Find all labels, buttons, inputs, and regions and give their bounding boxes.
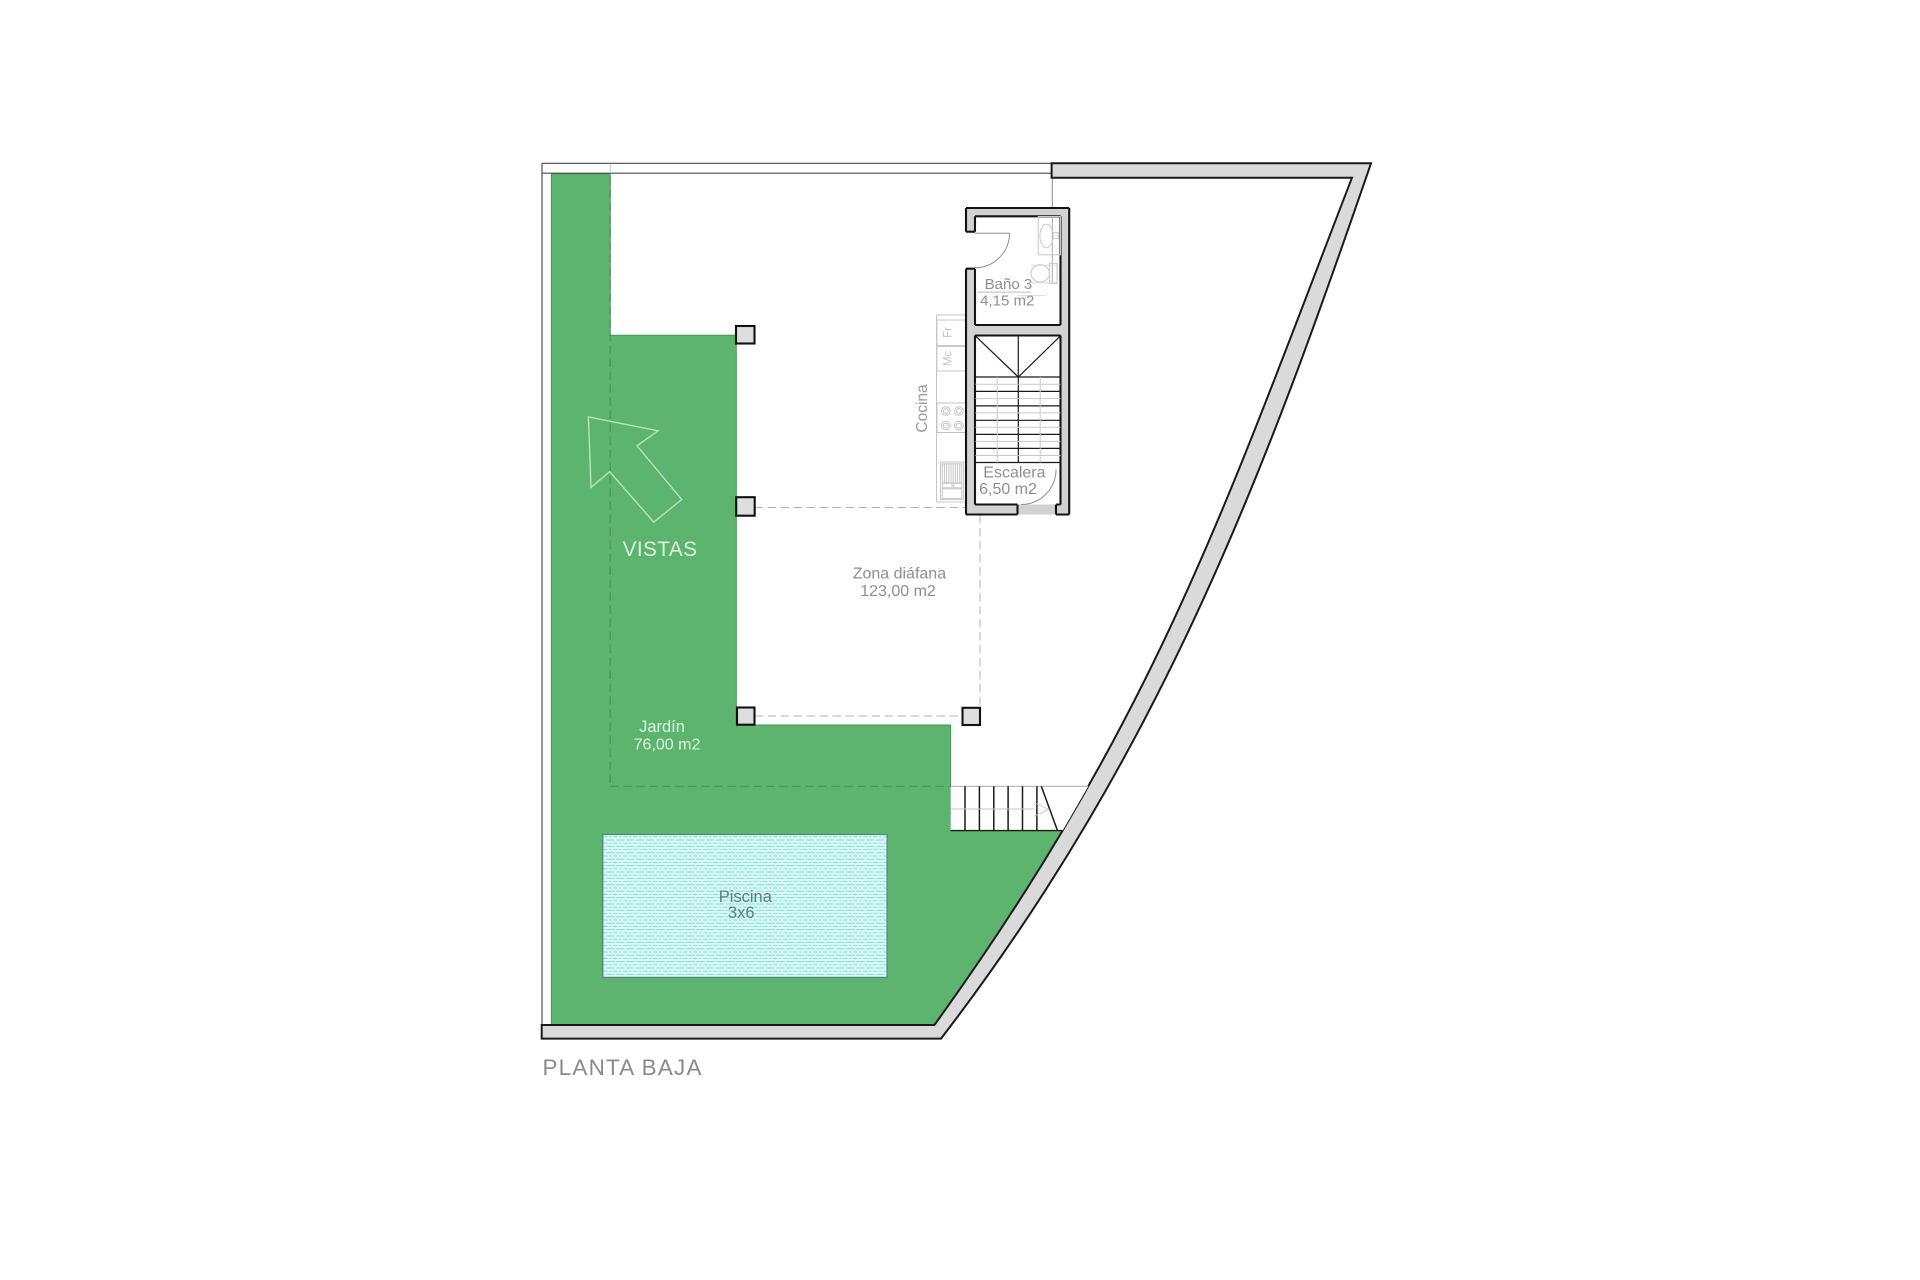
svg-text:76,00 m2: 76,00 m2 (634, 737, 701, 754)
svg-text:Escalera: Escalera (983, 465, 1045, 482)
svg-text:VISTAS: VISTAS (623, 538, 698, 561)
svg-text:4,15 m2: 4,15 m2 (980, 292, 1034, 309)
svg-text:Cocina: Cocina (914, 384, 931, 433)
svg-text:PLANTA BAJA: PLANTA BAJA (543, 1055, 703, 1080)
svg-text:123,00 m2: 123,00 m2 (860, 583, 936, 600)
svg-text:Mc: Mc (943, 351, 955, 367)
svg-text:Fr: Fr (943, 327, 955, 338)
svg-text:Zona diáfana: Zona diáfana (853, 566, 947, 583)
svg-text:6,50 m2: 6,50 m2 (979, 481, 1037, 498)
svg-text:3x6: 3x6 (728, 904, 755, 922)
svg-text:Baño 3: Baño 3 (985, 276, 1033, 293)
svg-text:Jardín: Jardín (639, 718, 685, 736)
